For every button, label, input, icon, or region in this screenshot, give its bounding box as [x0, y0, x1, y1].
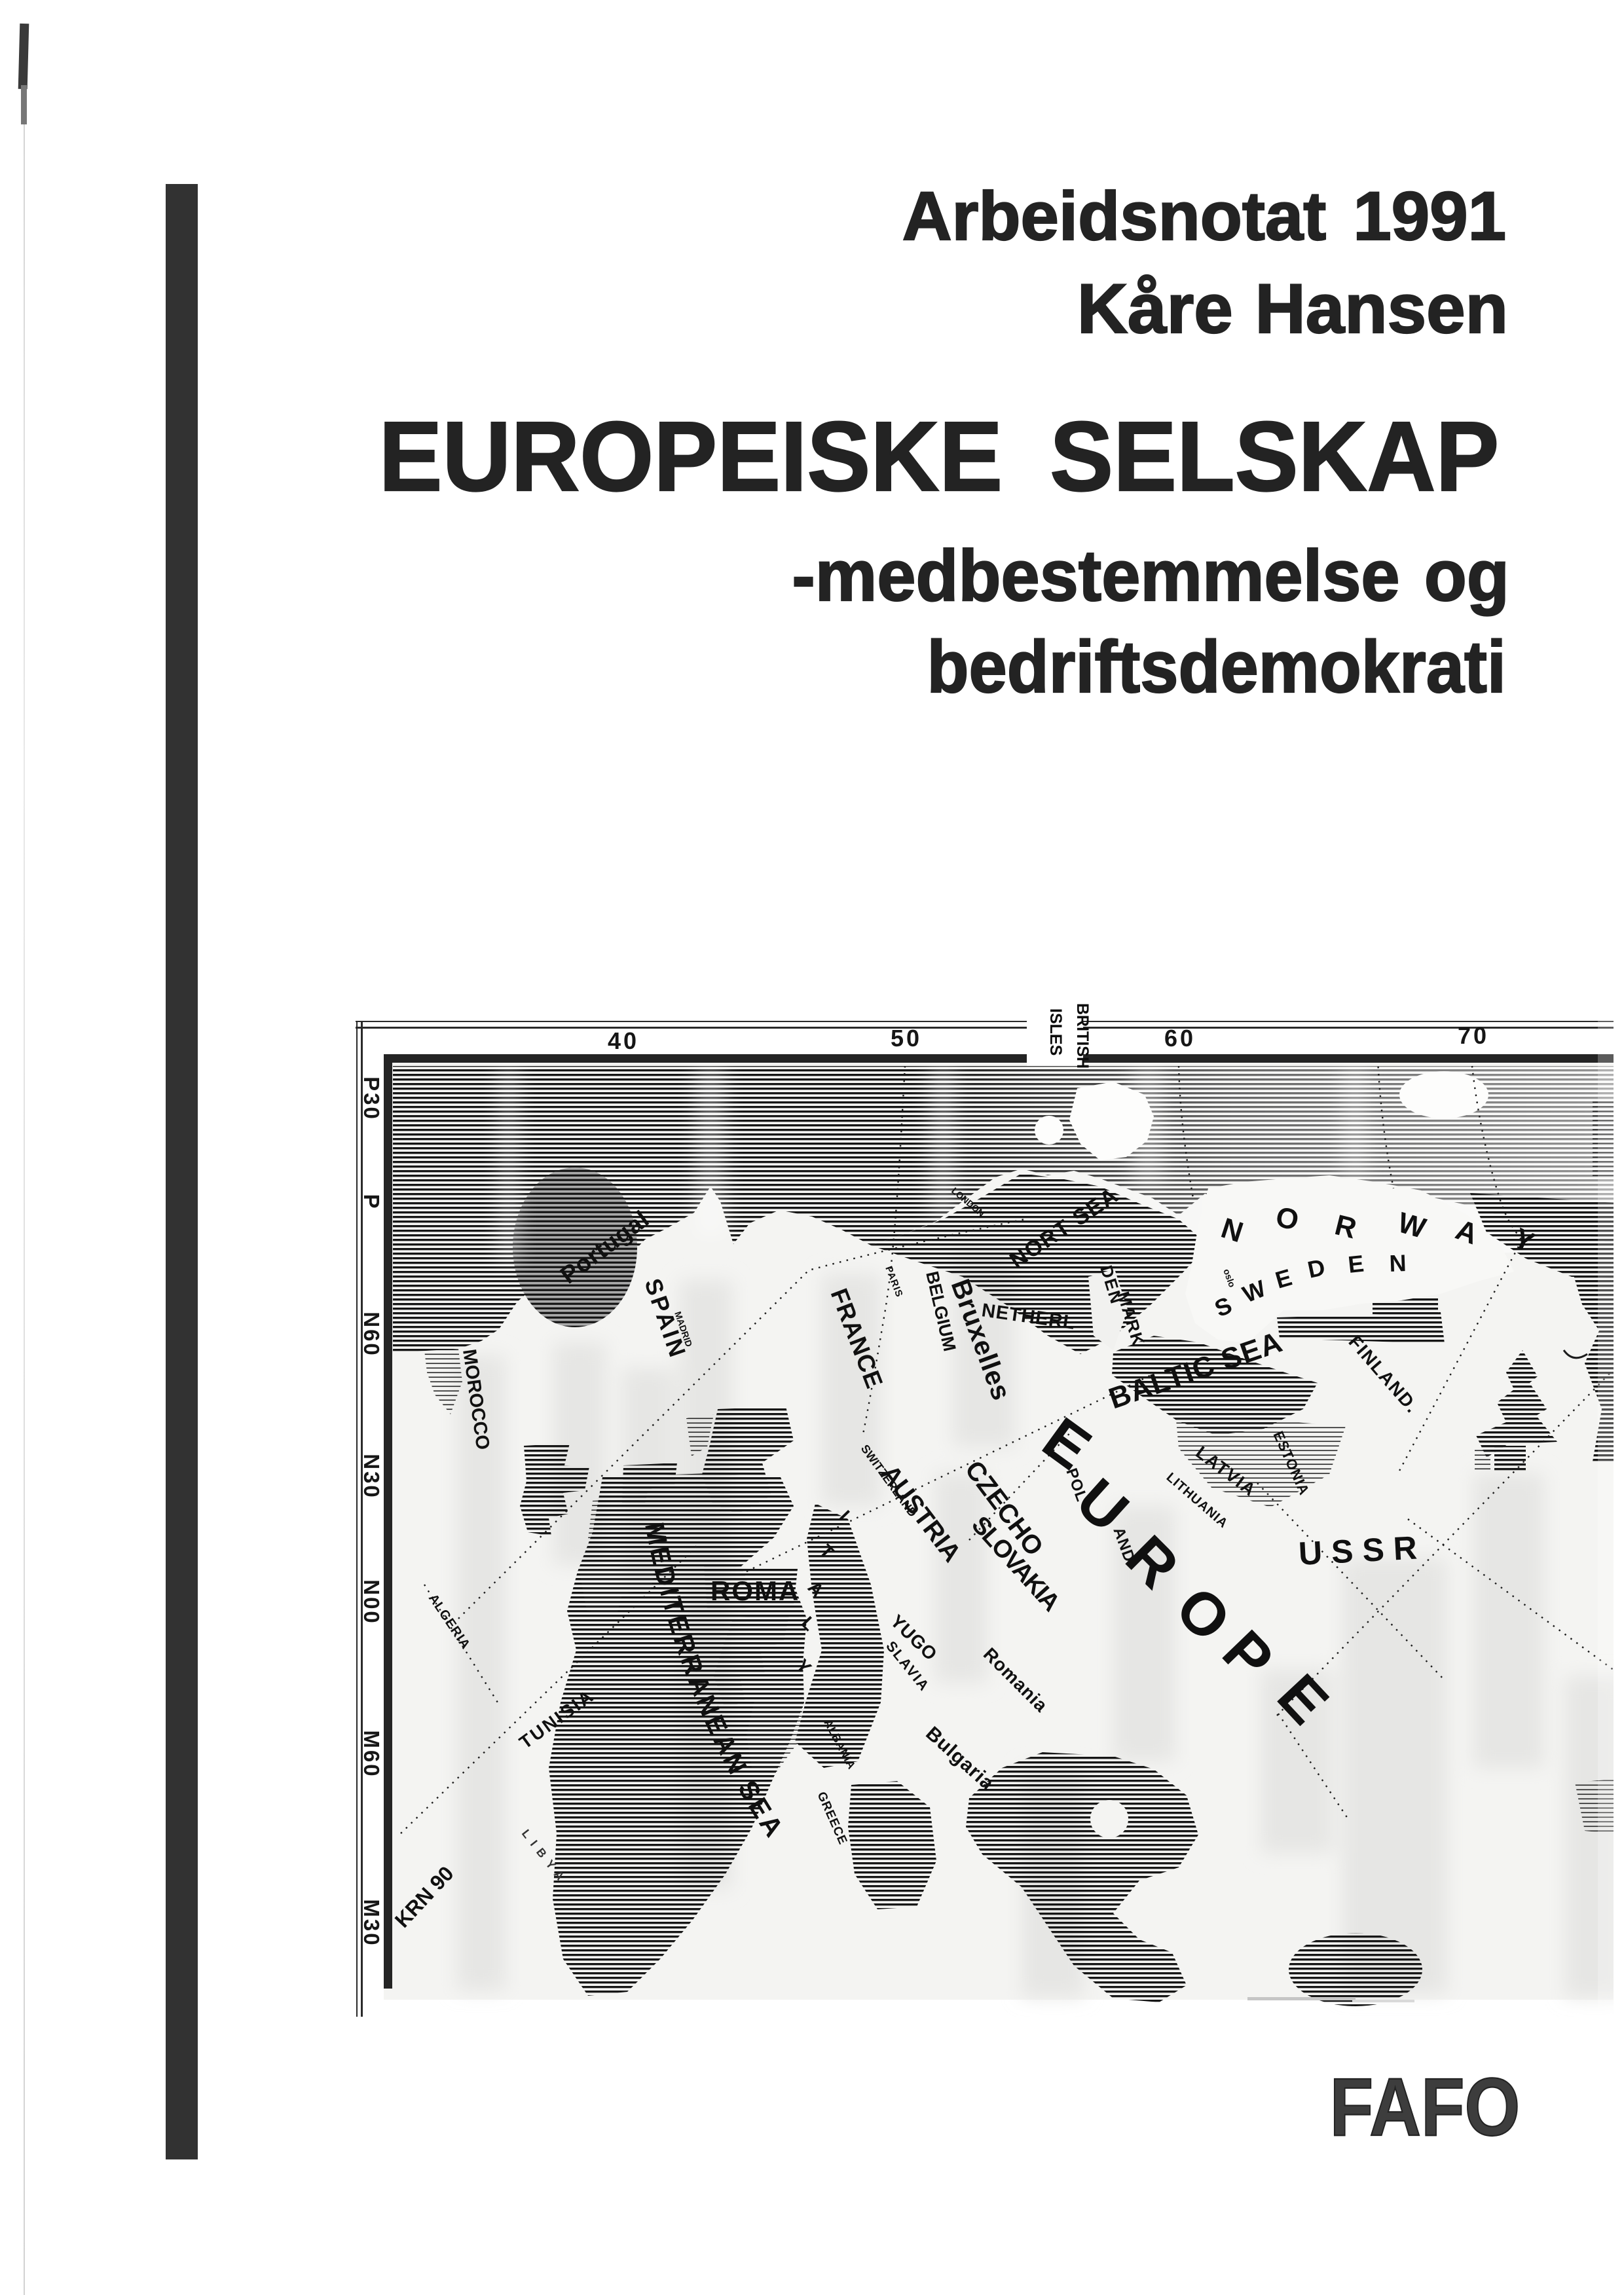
svg-text:BRITISH: BRITISH [1073, 1003, 1092, 1069]
svg-text:60: 60 [1164, 1025, 1196, 1052]
svg-text:ROMA: ROMA [710, 1575, 800, 1606]
svg-text:P30: P30 [360, 1076, 384, 1121]
svg-text:N60: N60 [360, 1312, 384, 1357]
svg-text:40: 40 [608, 1027, 639, 1054]
svg-text:N00: N00 [360, 1579, 384, 1625]
svg-text:N30: N30 [360, 1454, 384, 1499]
svg-text:ISLES: ISLES [1046, 1008, 1065, 1056]
svg-text:USSR: USSR [1298, 1529, 1428, 1572]
svg-text:M30: M30 [360, 1899, 384, 1947]
svg-text:P: P [360, 1194, 384, 1210]
svg-text:70: 70 [1458, 1022, 1489, 1049]
svg-text:50: 50 [891, 1025, 922, 1052]
svg-text:E: E [1347, 1250, 1365, 1278]
svg-text:M60: M60 [360, 1730, 384, 1778]
svg-text:N: N [1389, 1249, 1407, 1277]
